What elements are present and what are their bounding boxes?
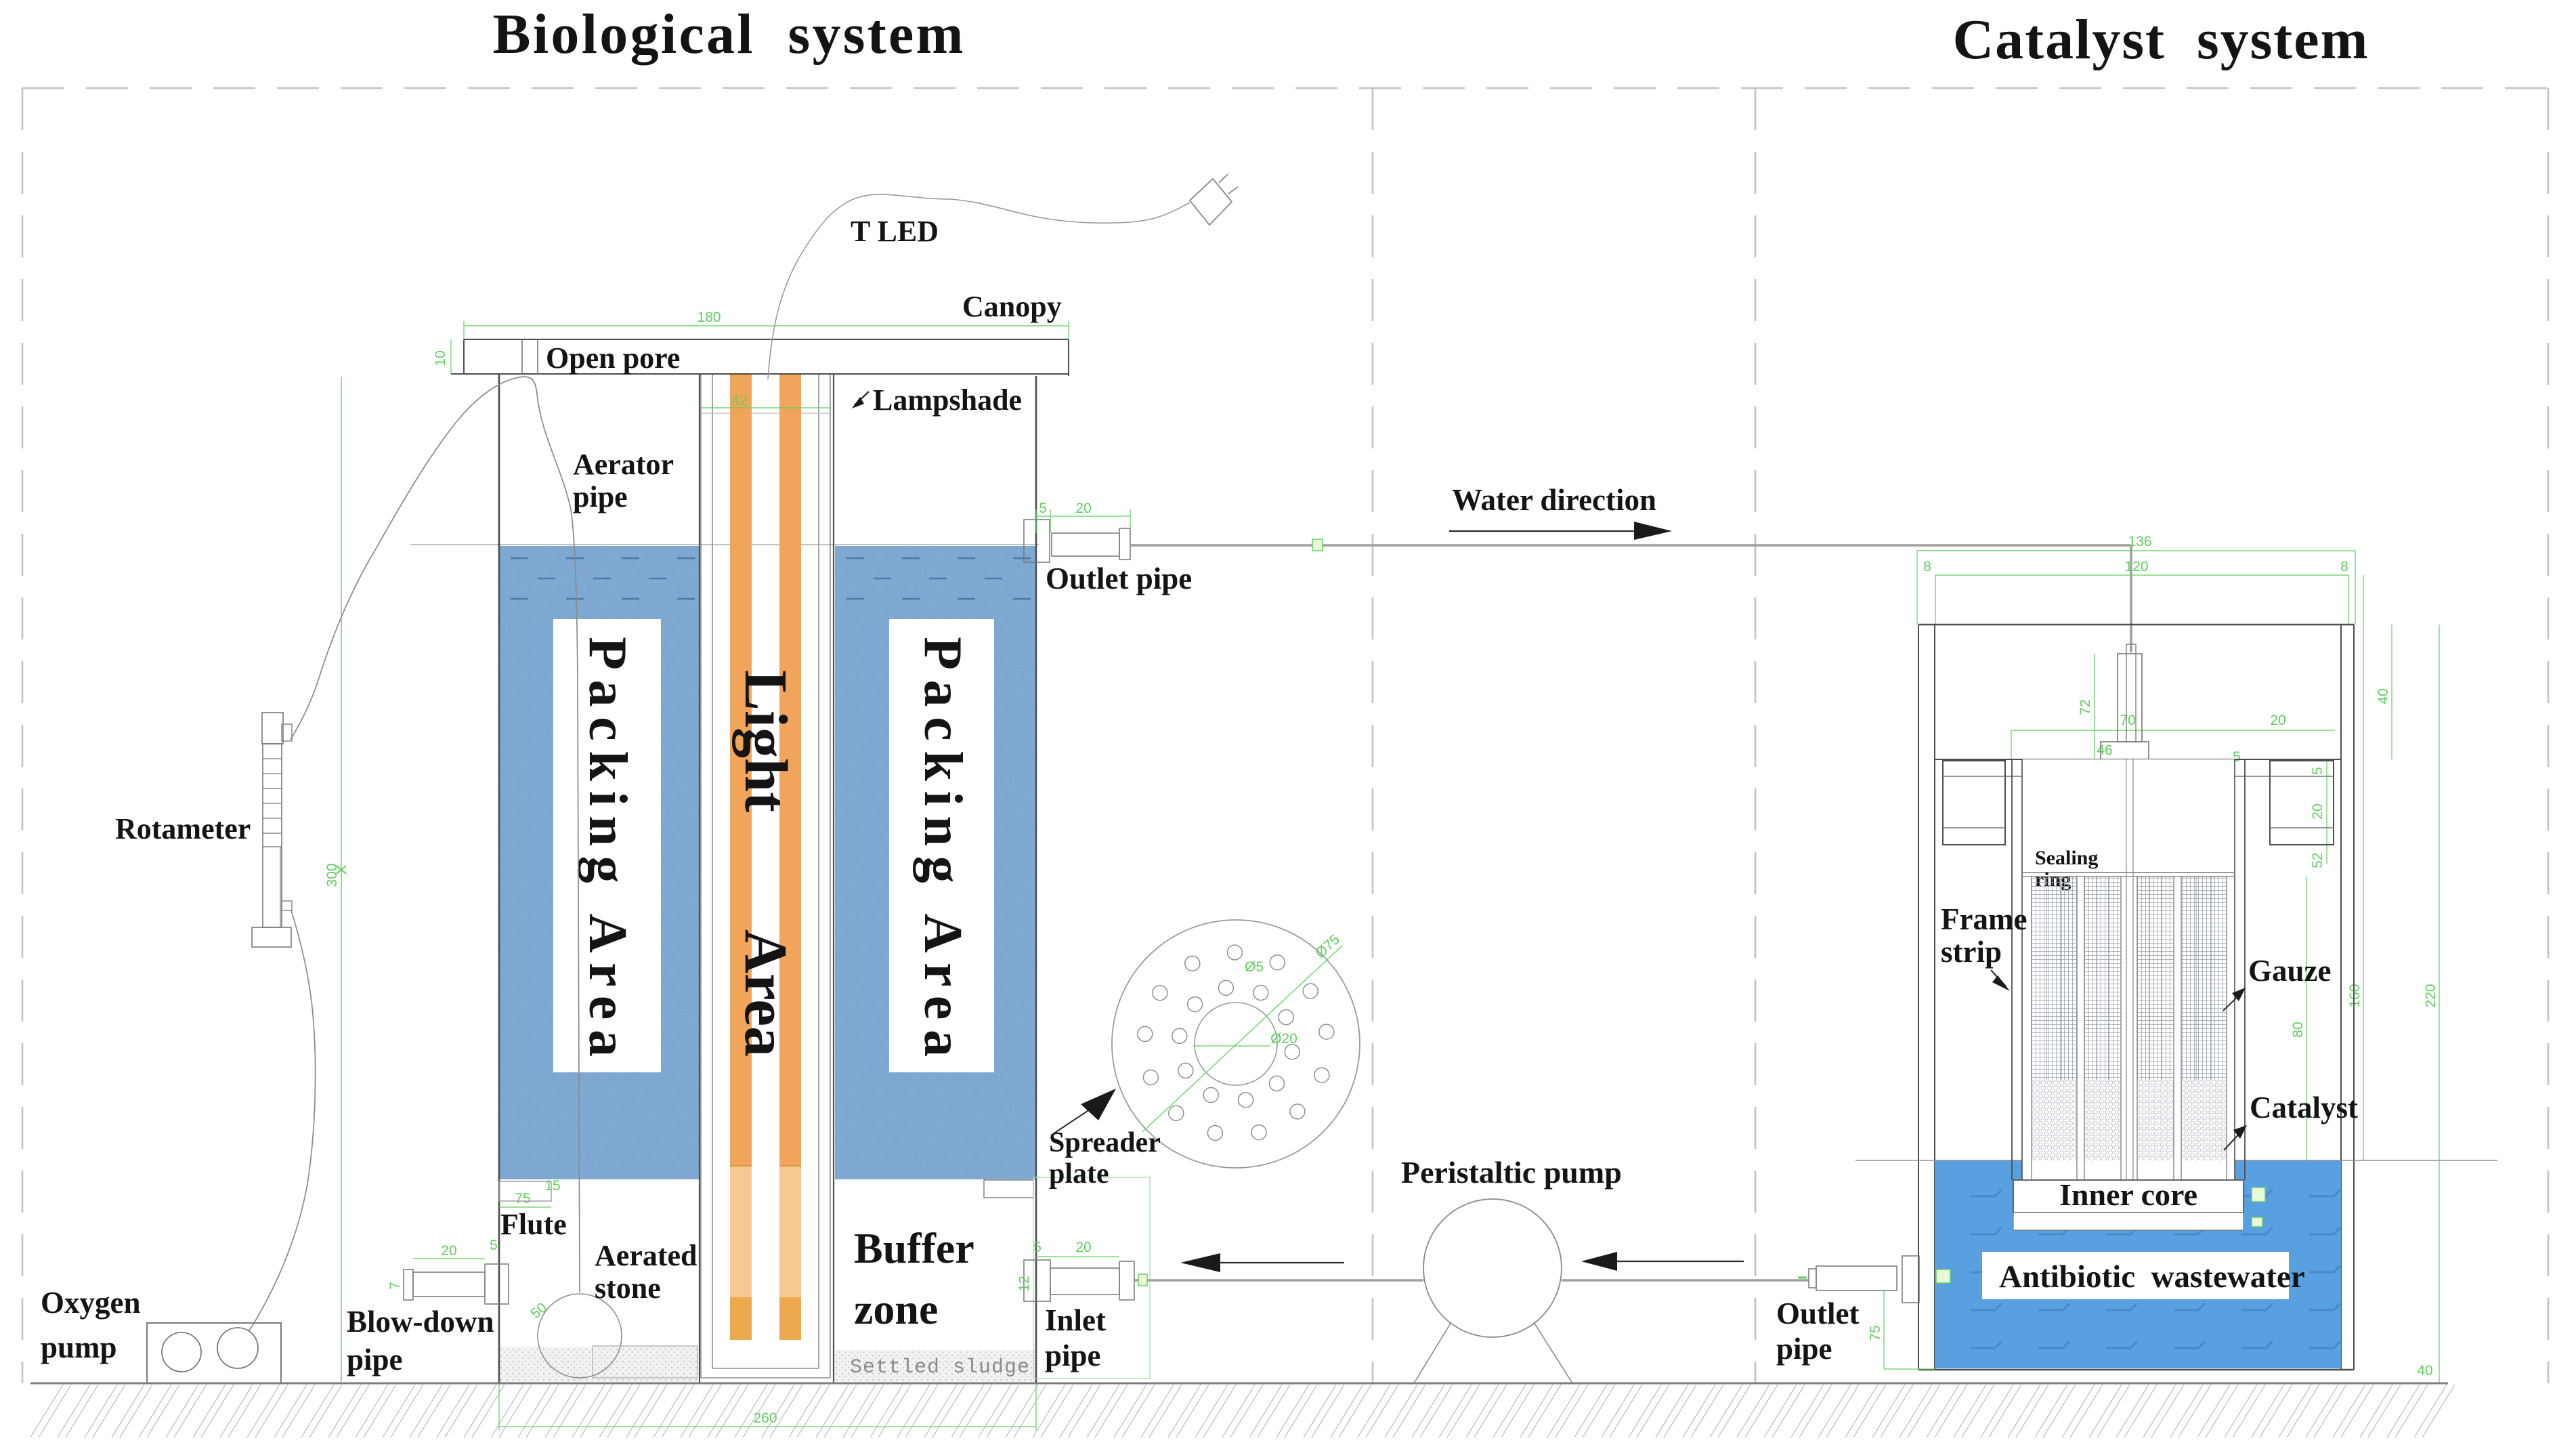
svg-text:plate: plate [1049,1158,1109,1190]
svg-text:Biological system: Biological system [493,3,964,66]
svg-text:Ø20: Ø20 [1270,1031,1297,1047]
svg-text:8: 8 [2340,559,2348,574]
svg-text:Rotameter: Rotameter [115,812,251,845]
svg-text:40: 40 [2376,688,2391,704]
svg-text:pump: pump [41,1330,117,1364]
svg-text:5: 5 [490,1238,498,1253]
svg-text:46: 46 [2097,742,2112,758]
svg-text:Water direction: Water direction [1452,483,1656,517]
svg-text:20: 20 [2310,803,2325,819]
svg-text:75: 75 [515,1191,530,1206]
svg-text:Settled sludge: Settled sludge [850,1356,1030,1379]
svg-text:Sealing: Sealing [2035,847,2098,869]
svg-text:12: 12 [1016,1276,1032,1291]
svg-text:20: 20 [1075,501,1091,516]
svg-text:10: 10 [433,350,448,366]
svg-text:20: 20 [1075,1240,1091,1255]
svg-text:T LED: T LED [851,215,939,248]
svg-text:52: 52 [2310,852,2325,868]
svg-text:Oxygen: Oxygen [41,1286,141,1320]
svg-text:Spreader: Spreader [1049,1127,1161,1158]
svg-text:Antibiotic wastewater: Antibiotic wastewater [1999,1259,2305,1295]
svg-text:20: 20 [441,1243,456,1259]
svg-text:120: 120 [2124,559,2148,574]
svg-text:Blow-down: Blow-down [347,1305,494,1339]
svg-text:Catalyst: Catalyst [2250,1091,2358,1124]
svg-text:Gauze: Gauze [2248,954,2331,988]
svg-text:160: 160 [2347,984,2363,1007]
svg-text:220: 220 [2423,984,2439,1007]
svg-text:Buffer: Buffer [854,1224,974,1272]
svg-text:180: 180 [697,310,721,325]
svg-text:5: 5 [1039,501,1047,516]
svg-text:Outlet: Outlet [1776,1297,1859,1330]
svg-text:pipe: pipe [1776,1332,1832,1366]
svg-text:8: 8 [1923,559,1931,574]
svg-text:Inner core: Inner core [2059,1177,2197,1212]
svg-text:7: 7 [387,1282,403,1290]
svg-text:stone: stone [595,1271,661,1305]
svg-text:15: 15 [544,1178,560,1194]
svg-text:5: 5 [2310,767,2325,775]
svg-text:80: 80 [2290,1022,2306,1037]
svg-text:Open pore: Open pore [546,341,680,375]
svg-text:Light: Light [732,670,799,812]
svg-text:5: 5 [1033,1240,1042,1255]
svg-text:Area: Area [732,929,799,1057]
svg-text:pipe: pipe [1045,1339,1101,1372]
svg-text:Canopy: Canopy [962,290,1062,323]
svg-text:20: 20 [2270,713,2285,728]
svg-text:70: 70 [2120,713,2135,728]
svg-text:40: 40 [2417,1363,2432,1379]
svg-text:Flute: Flute [500,1208,567,1241]
svg-text:75: 75 [1868,1325,1883,1341]
svg-text:pipe: pipe [573,480,628,513]
svg-text:Catalyst system: Catalyst system [1953,8,2368,71]
svg-text:zone: zone [854,1285,938,1333]
svg-text:Peristaltic pump: Peristaltic pump [1401,1155,1622,1190]
svg-text:strip: strip [1941,935,2002,969]
svg-text:Aerator: Aerator [573,448,674,481]
svg-text:Inlet: Inlet [1045,1303,1106,1337]
svg-text:pipe: pipe [347,1343,403,1376]
svg-text:42: 42 [731,393,747,408]
svg-text:136: 136 [2128,534,2151,549]
svg-text:Ø5: Ø5 [1245,959,1264,975]
svg-text:Outlet pipe: Outlet pipe [1046,562,1192,595]
svg-text:Lampshade: Lampshade [873,383,1022,417]
svg-text:Aerated: Aerated [595,1239,697,1272]
svg-text:Frame: Frame [1941,902,2027,936]
svg-text:72: 72 [2078,699,2093,715]
